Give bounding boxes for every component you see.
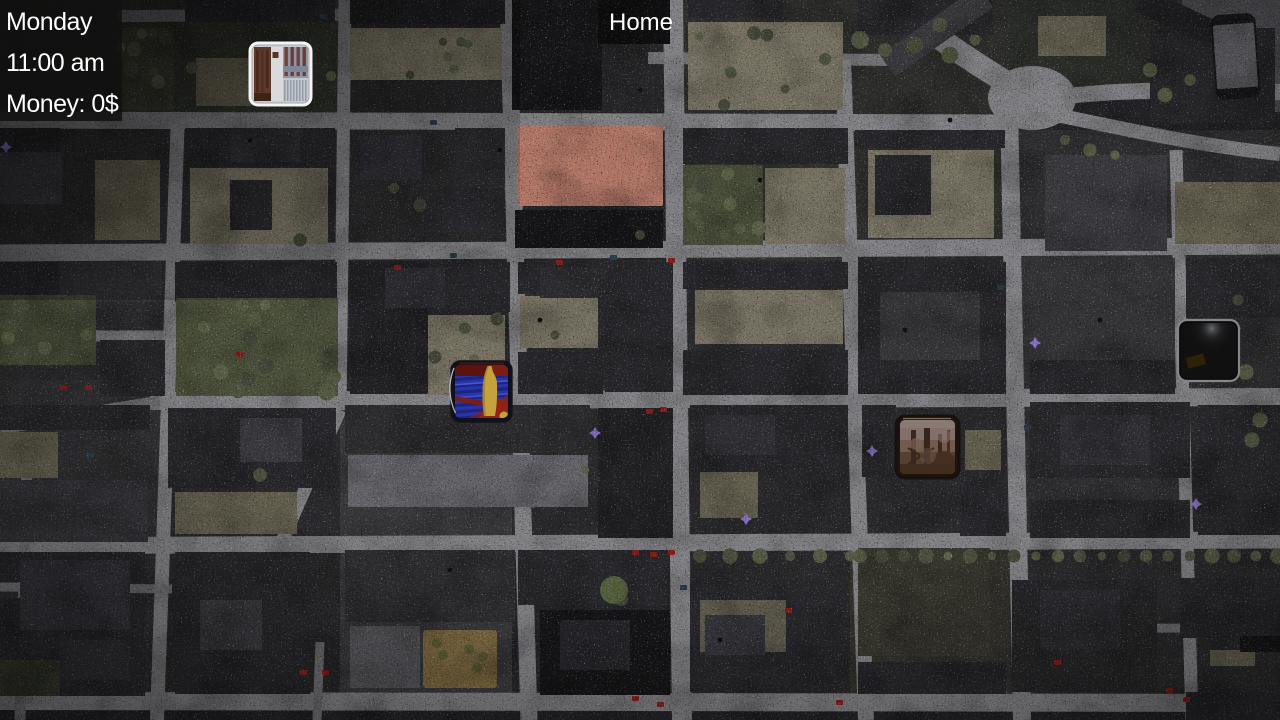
- svg-text:11:00 am: 11:00 am: [6, 49, 104, 77]
- svg-text:Home: Home: [609, 9, 673, 36]
- svg-text:Monday: Monday: [6, 8, 93, 36]
- svg-text:Money: 0$: Money: 0$: [6, 90, 119, 118]
